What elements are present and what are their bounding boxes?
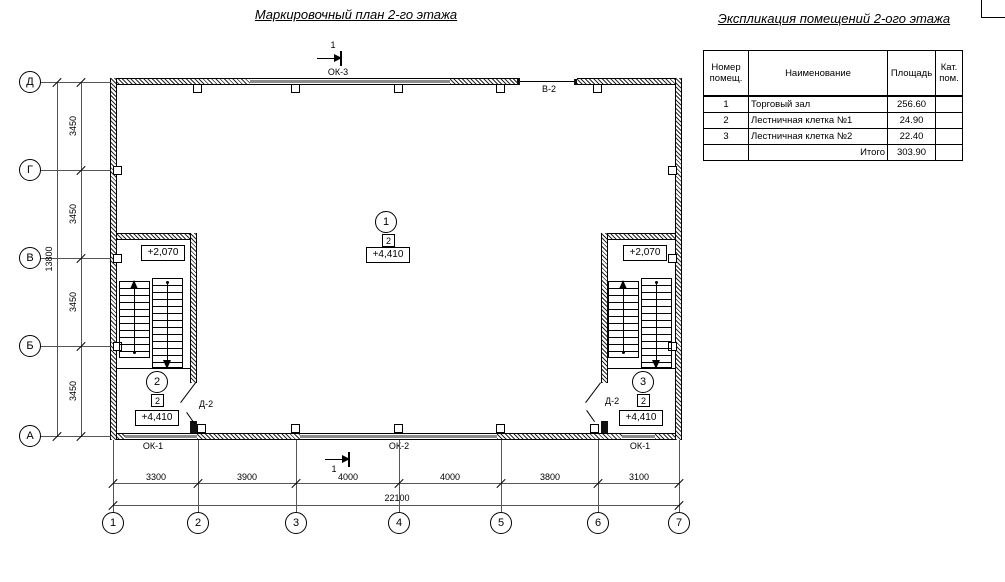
- axis-number: 1: [110, 517, 116, 529]
- grid-axis-bubble: 6: [587, 512, 609, 534]
- dim-label: 3450: [68, 292, 78, 312]
- dim-label: 3300: [146, 472, 166, 482]
- col-header-number: Номер помещ.: [704, 51, 749, 97]
- room-number-mark: 1: [375, 211, 397, 233]
- stairwell-left-top-wall: [117, 233, 190, 240]
- column-marker: [590, 424, 599, 433]
- elevation-mark: +2,070: [623, 245, 667, 261]
- axis-letter: А: [26, 430, 33, 442]
- column-marker: [193, 84, 202, 93]
- section-number-top: 1: [330, 40, 335, 50]
- table-header-row: Номер помещ. Наименование Площадь Кат. п…: [704, 51, 963, 97]
- stairs-arrow-start-dot: [655, 281, 658, 284]
- elevation-mark: +4,410: [135, 410, 179, 426]
- grid-axis-bubble: 3: [285, 512, 307, 534]
- axis-number: 4: [396, 517, 402, 529]
- room-number-cell: 3: [704, 129, 749, 145]
- dim-label-total: 22100: [384, 493, 409, 503]
- window-label-ok3: ОК-3: [328, 67, 348, 77]
- axis-letter: Г: [27, 164, 33, 176]
- room-name-cell: Лестничная клетка №1: [749, 113, 888, 129]
- room-name-cell: Лестничная клетка №2: [749, 129, 888, 145]
- grid-axis-bubble: 1: [102, 512, 124, 534]
- grid-axis-bubble: 4: [388, 512, 410, 534]
- dim-label: 4000: [338, 472, 358, 482]
- stair-landing-line: [607, 368, 675, 369]
- dim-label: 3100: [629, 472, 649, 482]
- axis-number: 3: [293, 517, 299, 529]
- column-marker: [496, 84, 505, 93]
- grid-axis-bubble: 5: [490, 512, 512, 534]
- window-ok1-right: [622, 433, 655, 440]
- column-marker: [113, 166, 122, 175]
- extension-line: [501, 440, 502, 512]
- column-marker: [394, 84, 403, 93]
- axis-number: 6: [595, 517, 601, 529]
- axis-line: [41, 346, 111, 347]
- stairs-down-arrow-icon: [656, 282, 657, 362]
- elevation-mark: +2,070: [141, 245, 185, 261]
- axis-letter: Б: [26, 340, 33, 352]
- room-cat-cell: [936, 96, 963, 113]
- opening-v2-lintel: [520, 81, 574, 82]
- section-number-bottom: 1: [331, 464, 336, 474]
- stairs-down-arrow-icon: [167, 282, 168, 362]
- stairwell-right-top-wall: [607, 233, 675, 240]
- stairs-arrow-start-dot: [133, 351, 136, 354]
- col-header-cat: Кат. пом.: [936, 51, 963, 97]
- extension-line: [679, 440, 680, 512]
- dim-label: 3800: [540, 472, 560, 482]
- explication-table: Номер помещ. Наименование Площадь Кат. п…: [703, 50, 963, 161]
- table-row: 2 Лестничная клетка №1 24.90: [704, 113, 963, 129]
- drawing-sheet: Маркировочный план 2-го этажа Экспликаци…: [0, 0, 1005, 582]
- axis-letter: Д: [26, 76, 33, 88]
- dim-label: 3450: [68, 204, 78, 224]
- dim-label-total: 13800: [44, 246, 54, 271]
- door-leaf-line: [586, 410, 595, 422]
- finish-type-mark: 2: [637, 394, 650, 407]
- wall-top-segment: [110, 78, 250, 85]
- room-number-cell: 2: [704, 113, 749, 129]
- room-area-cell: 22.40: [888, 129, 936, 145]
- column-marker: [593, 84, 602, 93]
- section-arrow-icon: [317, 58, 334, 59]
- column-marker: [496, 424, 505, 433]
- room-number: 1: [383, 216, 389, 228]
- dim-label: 3450: [68, 116, 78, 136]
- window-ok3: [250, 78, 450, 85]
- column-marker: [291, 424, 300, 433]
- axis-line: [41, 82, 111, 83]
- room-number-cell: [704, 145, 749, 161]
- wall-top-segment: [450, 78, 520, 85]
- total-area-cell: 303.90: [888, 145, 936, 161]
- col-header-area: Площадь: [888, 51, 936, 97]
- window-ok2: [300, 433, 497, 440]
- finish-type: 2: [641, 396, 646, 406]
- col-header-name: Наименование: [749, 51, 888, 97]
- door-label-left: Д-2: [199, 399, 213, 409]
- stairs-up-arrowhead-icon: [619, 280, 627, 289]
- column-marker: [197, 424, 206, 433]
- window-label-ok1-left: ОК-1: [143, 441, 163, 451]
- stairs-up-arrow-icon: [134, 286, 135, 352]
- window-ok1-left: [125, 433, 197, 440]
- axis-number: 2: [195, 517, 201, 529]
- room-area-cell: 24.90: [888, 113, 936, 129]
- grid-axis-bubble: Б: [19, 335, 41, 357]
- wall-bottom-segment: [497, 433, 622, 440]
- elevation-mark: +4,410: [366, 247, 410, 263]
- stairs-up-arrowhead-icon: [130, 280, 138, 289]
- wall-end-cap: [517, 79, 520, 85]
- room-area-cell: 256.60: [888, 96, 936, 113]
- door-leaf-line: [180, 382, 196, 403]
- dim-label: 4000: [440, 472, 460, 482]
- stairs-up-arrow-icon: [623, 286, 624, 352]
- grid-axis-bubble: 2: [187, 512, 209, 534]
- total-label-cell: Итого: [749, 145, 888, 161]
- room-cat-cell: [936, 129, 963, 145]
- stairs-arrow-start-dot: [166, 281, 169, 284]
- section-cut-bar: [348, 452, 350, 467]
- table-total-row: Итого 303.90: [704, 145, 963, 161]
- explication-title: Экспликация помещений 2-ого этажа: [718, 11, 950, 26]
- table-row: 3 Лестничная клетка №2 22.40: [704, 129, 963, 145]
- column-marker: [668, 254, 677, 263]
- column-marker: [668, 166, 677, 175]
- finish-type-mark: 2: [151, 394, 164, 407]
- column-marker: [113, 254, 122, 263]
- finish-type: 2: [155, 396, 160, 406]
- section-arrow-icon: [325, 459, 342, 460]
- grid-axis-bubble: 7: [668, 512, 690, 534]
- section-cut-bar: [340, 51, 342, 66]
- room-number-mark: 3: [632, 371, 654, 393]
- extension-line: [113, 440, 114, 512]
- room-number: 2: [154, 376, 160, 388]
- finish-type-mark: 2: [382, 234, 395, 247]
- column-marker: [394, 424, 403, 433]
- axis-line: [41, 436, 111, 437]
- grid-axis-bubble: Д: [19, 71, 41, 93]
- room-number-mark: 2: [146, 371, 168, 393]
- extension-line: [296, 440, 297, 512]
- grid-axis-bubble: В: [19, 247, 41, 269]
- vent-label-v2: В-2: [542, 84, 556, 94]
- stairwell-right-side-wall: [601, 233, 608, 383]
- door-jamb: [601, 421, 608, 433]
- stairwell-left-side-wall: [190, 233, 197, 383]
- dimension-line-total-bottom: [113, 505, 679, 506]
- room-name-cell: Торговый зал: [749, 96, 888, 113]
- axis-letter: В: [26, 252, 33, 264]
- axis-number: 5: [498, 517, 504, 529]
- finish-type: 2: [386, 236, 391, 246]
- grid-axis-bubble: А: [19, 425, 41, 447]
- grid-axis-bubble: Г: [19, 159, 41, 181]
- wall-bottom-segment: [197, 433, 300, 440]
- room-number-cell: 1: [704, 96, 749, 113]
- dim-label: 3450: [68, 381, 78, 401]
- column-marker: [291, 84, 300, 93]
- extension-line: [198, 440, 199, 512]
- window-label-ok1-right: ОК-1: [630, 441, 650, 451]
- room-number: 3: [640, 376, 646, 388]
- dimension-line-total-left: [57, 82, 58, 436]
- dim-label: 3900: [237, 472, 257, 482]
- stair-landing-line: [117, 368, 190, 369]
- door-label-right: Д-2: [605, 396, 619, 406]
- axis-number: 7: [676, 517, 682, 529]
- table-row: 1 Торговый зал 256.60: [704, 96, 963, 113]
- door-leaf-line: [585, 382, 601, 403]
- frame-corner-hline: [981, 17, 1005, 18]
- room-cat-cell: [936, 145, 963, 161]
- axis-line: [41, 170, 111, 171]
- frame-corner-vline: [981, 0, 982, 17]
- room-cat-cell: [936, 113, 963, 129]
- extension-line: [598, 440, 599, 512]
- elevation-mark: +4,410: [619, 410, 663, 426]
- stairs-arrow-start-dot: [622, 351, 625, 354]
- plan-title: Маркировочный план 2-го этажа: [255, 7, 457, 22]
